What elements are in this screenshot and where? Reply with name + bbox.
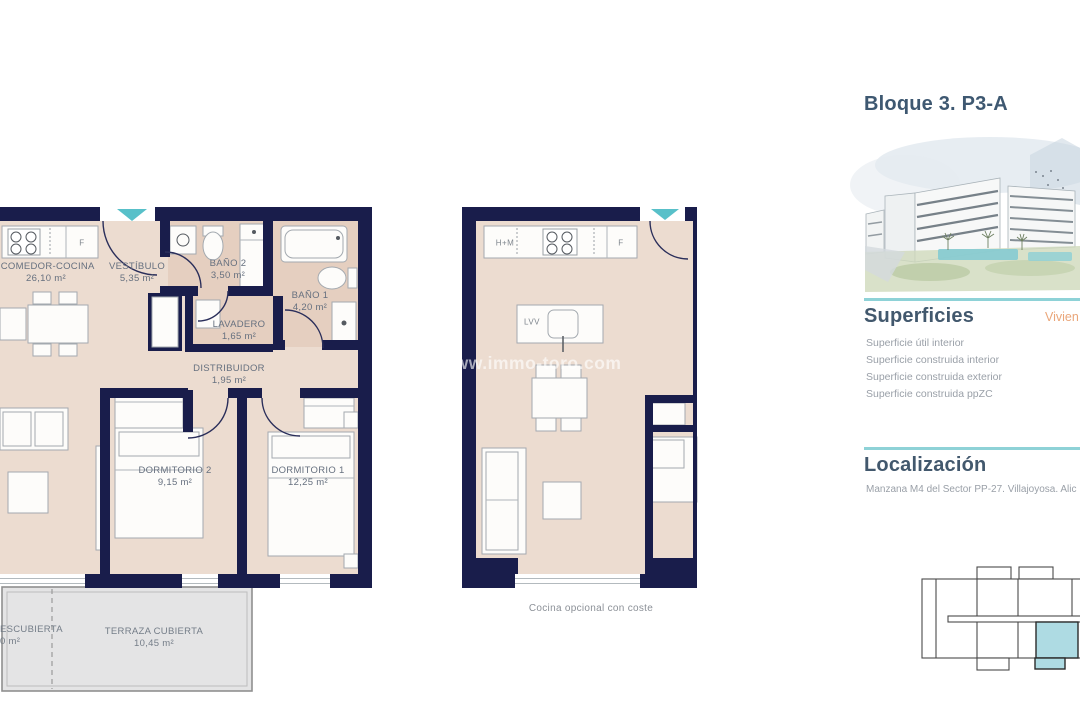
room-label-vestibulo: VESTÍBULO 5,35 m² xyxy=(109,261,165,285)
stove-icon xyxy=(543,229,577,255)
room-name: DISTRIBUIDOR xyxy=(193,363,265,375)
bed-icon xyxy=(652,437,697,502)
room-area: 1,95 m² xyxy=(193,375,265,387)
room-area: 10,45 m² xyxy=(105,638,203,650)
entrance-arrow-icon xyxy=(117,209,147,221)
superficies-column-tag: Vivien xyxy=(1045,310,1079,324)
bathtub-icon xyxy=(281,226,347,262)
room-area: 26,10 m² xyxy=(0,273,95,285)
room-label-bano-2: BAÑO 2 3,50 m² xyxy=(210,258,247,282)
door-leaf-icon xyxy=(652,403,685,425)
bathroom-sink-icon xyxy=(332,302,356,344)
room-area: 9,15 m² xyxy=(138,477,211,489)
room-area: 3,50 m² xyxy=(210,270,247,282)
key-plan-highlighted-unit xyxy=(1035,622,1078,669)
closet-icon xyxy=(115,394,183,428)
room-label-salon-comedor-cocina: -COMEDOR-COCINA 26,10 m² xyxy=(0,261,95,285)
superficie-item: Superficie construida ppZC xyxy=(866,388,993,400)
toilet-icon xyxy=(318,267,357,289)
optional-floorplan-drawing xyxy=(462,207,697,588)
stove-icon xyxy=(8,229,40,255)
sofa-icon xyxy=(482,448,526,554)
key-plan xyxy=(922,567,1080,670)
room-name: TERRAZA CUBIERTA xyxy=(105,626,203,638)
room-label-dormitorio-2: DORMITORIO 2 9,15 m² xyxy=(138,465,211,489)
fridge-label: F xyxy=(618,239,623,248)
window-icon xyxy=(515,576,640,586)
bed-icon xyxy=(268,432,354,556)
building-rendering xyxy=(850,137,1080,292)
section-divider xyxy=(864,447,1080,450)
nightstand-icon xyxy=(344,554,358,568)
pool xyxy=(938,249,1018,260)
localizacion-text: Manzana M4 del Sector PP-27. Villajoyosa… xyxy=(866,484,1080,495)
room-name: DORMITORIO 2 xyxy=(138,465,211,477)
side-table-icon xyxy=(8,472,48,513)
sofa-icon xyxy=(0,408,68,450)
room-name: LAVADERO xyxy=(213,319,266,331)
superficie-item: Superficie construida exterior xyxy=(866,371,1002,383)
room-label-lavadero: LAVADERO 1,65 m² xyxy=(213,319,266,343)
block-title: Bloque 3. P3-A xyxy=(864,93,1008,116)
apartment-building xyxy=(1008,186,1075,250)
superficies-heading: Superficies xyxy=(864,305,974,328)
room-label-terraza-descubierta: ESCUBIERTA 0 m² xyxy=(0,624,63,648)
pool xyxy=(1028,252,1072,261)
room-name: DORMITORIO 1 xyxy=(271,465,344,477)
hm-label: H+M xyxy=(496,239,515,248)
room-area: 1,65 m² xyxy=(213,331,266,343)
brochure-page: -COMEDOR-COCINA 26,10 m² VESTÍBULO 5,35 … xyxy=(0,0,1080,720)
room-label-bano-1: BAÑO 1 4,20 m² xyxy=(292,290,329,314)
room-name: BAÑO 1 xyxy=(292,290,329,302)
room-name: -COMEDOR-COCINA xyxy=(0,261,95,273)
section-divider xyxy=(864,298,1080,301)
room-area: 4,20 m² xyxy=(292,302,329,314)
superficie-item: Superficie útil interior xyxy=(866,337,964,349)
watermark: www.immo-toro.com xyxy=(441,353,622,374)
bathroom-sink-icon xyxy=(170,226,196,254)
wardrobe-icon xyxy=(152,297,178,347)
toilet-icon xyxy=(203,226,223,260)
fridge-label: F xyxy=(79,239,84,248)
room-name: VESTÍBULO xyxy=(109,261,165,273)
optional-kitchen-caption: Cocina opcional con coste xyxy=(529,603,653,614)
nightstand-icon xyxy=(344,412,358,428)
room-area: 5,35 m² xyxy=(109,273,165,285)
room-name: ESCUBIERTA xyxy=(0,624,63,636)
island-sink-icon xyxy=(548,310,578,338)
room-area: 12,25 m² xyxy=(271,477,344,489)
localizacion-heading: Localización xyxy=(864,454,986,477)
room-label-terraza-cubierta: TERRAZA CUBIERTA 10,45 m² xyxy=(105,626,203,650)
superficie-item: Superficie construida interior xyxy=(866,354,999,366)
coffee-table-icon xyxy=(543,482,581,519)
room-label-dormitorio-1: DORMITORIO 1 12,25 m² xyxy=(271,465,344,489)
room-label-distribuidor: DISTRIBUIDOR 1,95 m² xyxy=(193,363,265,387)
key-plan-corridor xyxy=(948,616,1080,622)
entrance-arrow-icon xyxy=(651,209,679,220)
room-area: 0 m² xyxy=(0,636,63,648)
room-name: BAÑO 2 xyxy=(210,258,247,270)
island-label: LVV xyxy=(524,318,540,327)
